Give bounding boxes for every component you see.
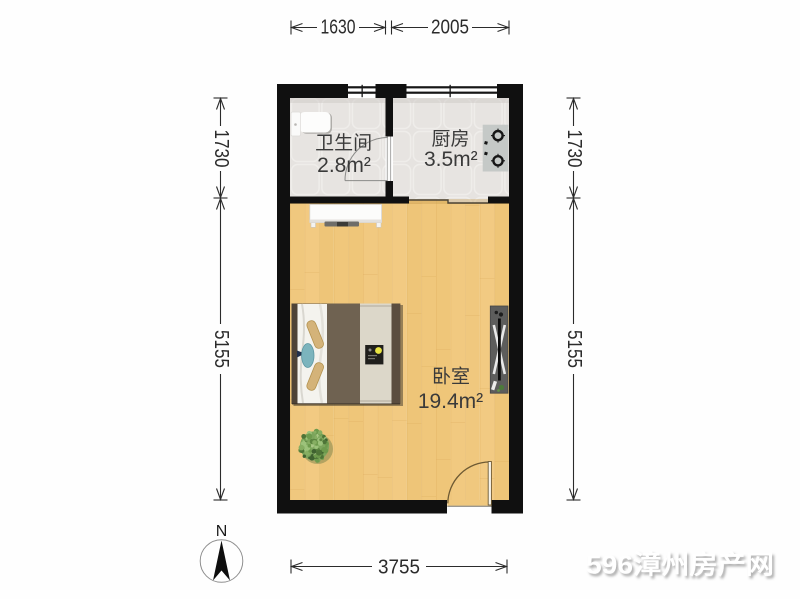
svg-text:卫生间: 卫生间 <box>315 132 372 154</box>
svg-text:1730: 1730 <box>210 130 232 168</box>
svg-text:596漳州房产网: 596漳州房产网 <box>586 550 774 580</box>
svg-text:1630: 1630 <box>321 17 356 39</box>
svg-text:3755: 3755 <box>378 557 420 579</box>
svg-text:1730: 1730 <box>563 130 585 168</box>
svg-text:5155: 5155 <box>563 330 585 368</box>
svg-text:2005: 2005 <box>431 17 469 39</box>
svg-text:N: N <box>216 523 228 540</box>
svg-text:厨房: 厨房 <box>431 128 469 150</box>
svg-text:3.5m²: 3.5m² <box>424 148 478 171</box>
svg-text:5155: 5155 <box>210 330 232 368</box>
svg-text:2.8m²: 2.8m² <box>317 154 371 177</box>
svg-text:卧室: 卧室 <box>432 366 470 388</box>
svg-text:19.4m²: 19.4m² <box>418 390 483 413</box>
